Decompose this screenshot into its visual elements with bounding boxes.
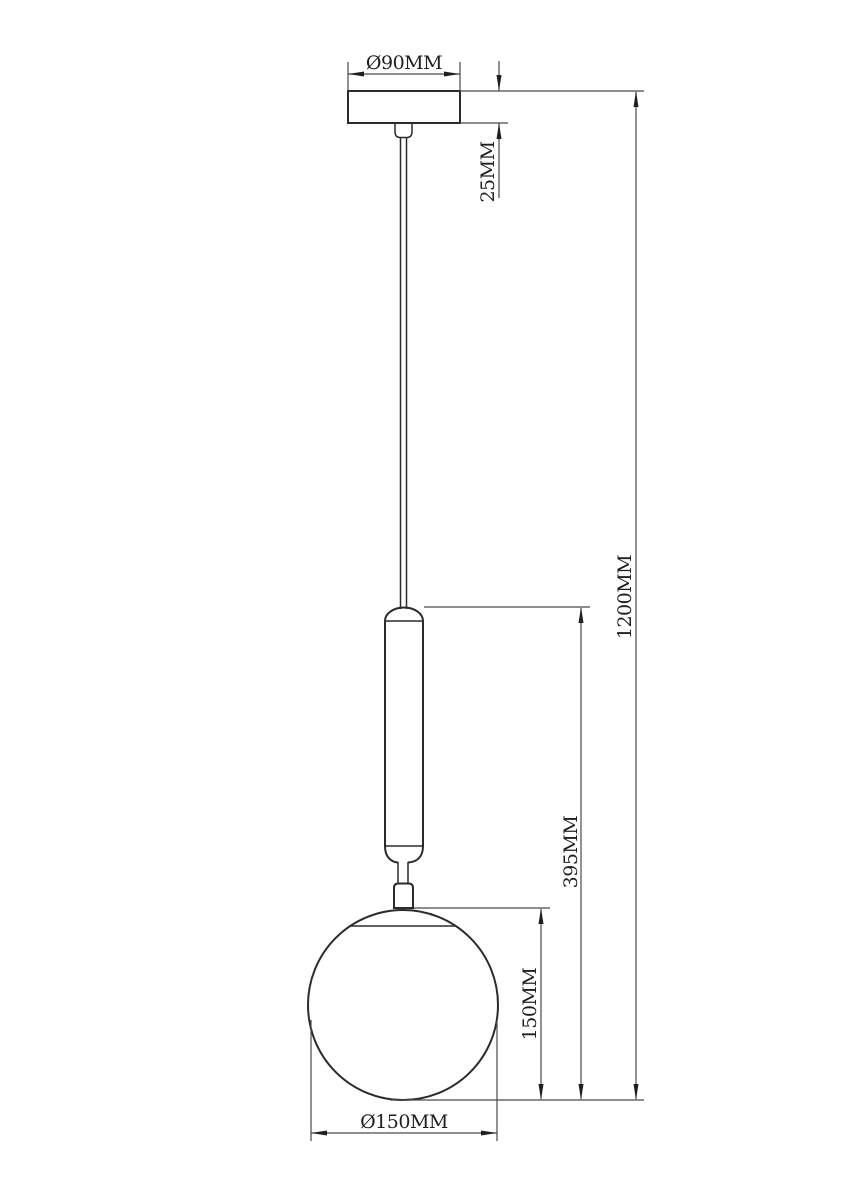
dimension-label-canopy-height: 25MM — [477, 141, 499, 202]
rod-shoulder-right — [408, 846, 423, 863]
arrowhead-down — [634, 1084, 639, 1100]
ceiling-canopy — [348, 91, 460, 123]
cord-connector — [395, 123, 412, 138]
lamp-socket — [394, 884, 413, 909]
dimension-label-canopy-diameter: Ø90MM — [366, 52, 442, 74]
dimension-label-globe-height: 150MM — [519, 968, 541, 1041]
dimension-canopy-diameter: Ø90MM — [348, 52, 460, 91]
drawing-canvas: Ø90MM 25MM 1200MM 395MM — [0, 0, 848, 1200]
glass-globe — [308, 910, 498, 1100]
rod-shoulder-left — [385, 846, 398, 863]
dimension-body-drop: 395MM — [424, 607, 590, 1100]
dimension-label-globe-diameter: Ø150MM — [360, 1111, 448, 1133]
arrowhead-left — [348, 72, 364, 77]
arrowhead-up — [579, 607, 584, 623]
dimension-overall-height: 1200MM — [390, 91, 644, 1100]
arrowhead-up — [497, 123, 502, 139]
lamp-fixture — [308, 91, 498, 1100]
rod-dome-cap — [385, 608, 423, 622]
arrowhead-up — [634, 91, 639, 107]
arrowhead-left — [311, 1131, 327, 1136]
arrowhead-down — [579, 1084, 584, 1100]
arrowhead-up — [539, 908, 544, 924]
dimension-globe-height: 150MM — [414, 908, 550, 1100]
dimension-globe-diameter: Ø150MM — [311, 1020, 497, 1141]
arrowhead-right — [481, 1131, 497, 1136]
dimension-label-body-drop: 395MM — [560, 816, 582, 889]
dimension-label-overall-height: 1200MM — [614, 555, 636, 639]
arrowhead-right — [444, 72, 460, 77]
arrowhead-down — [497, 75, 502, 91]
pendant-lamp-technical-drawing: Ø90MM 25MM 1200MM 395MM — [0, 0, 848, 1200]
dimension-canopy-height: 25MM — [460, 61, 508, 203]
arrowhead-down — [539, 1084, 544, 1100]
